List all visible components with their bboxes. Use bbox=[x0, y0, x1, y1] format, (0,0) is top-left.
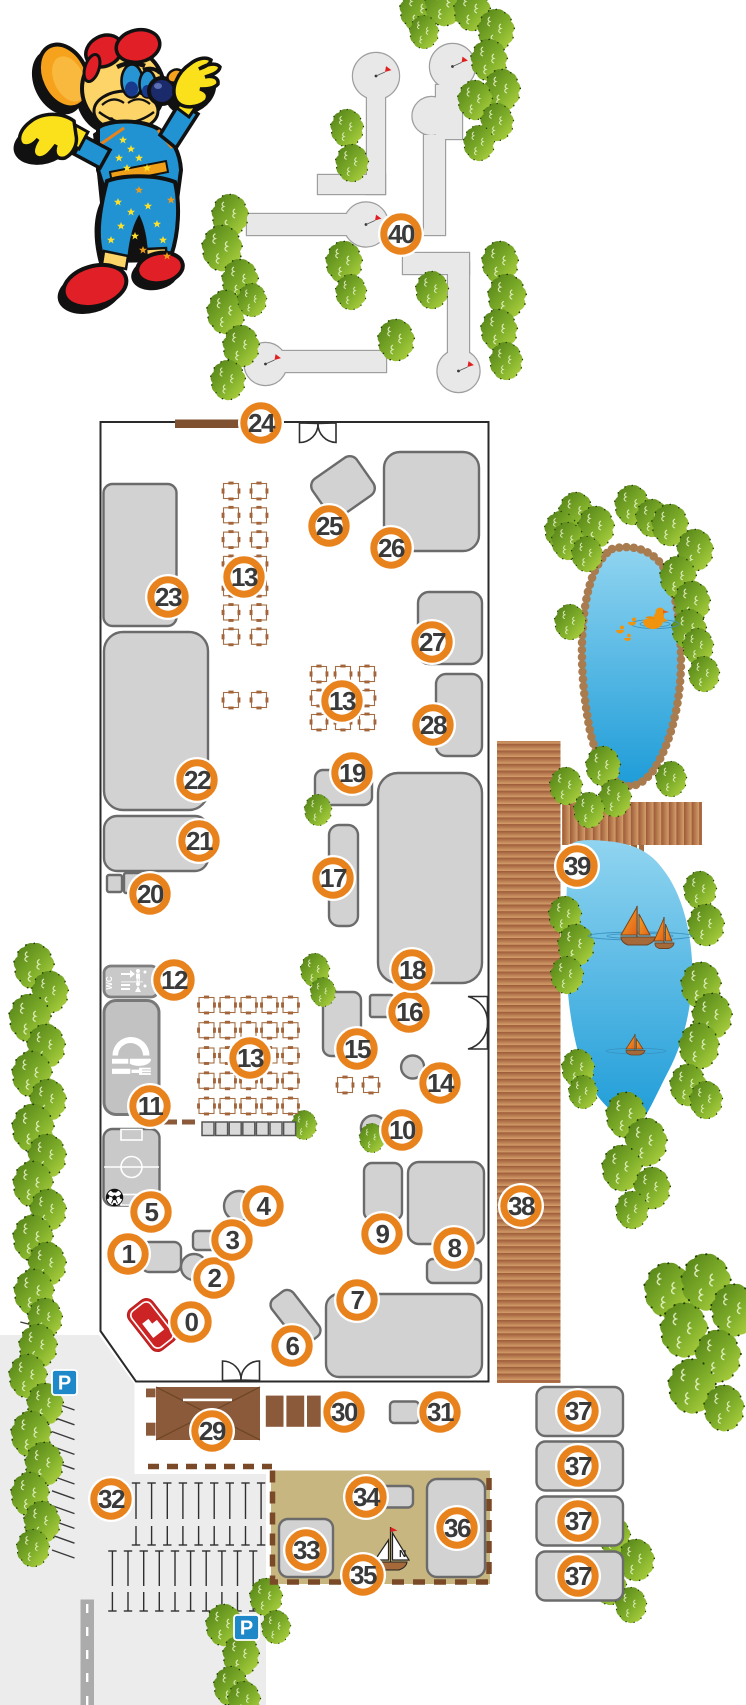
svg-text:15: 15 bbox=[344, 1034, 371, 1064]
svg-text:26: 26 bbox=[378, 533, 405, 563]
svg-text:5: 5 bbox=[145, 1197, 159, 1227]
svg-text:38: 38 bbox=[508, 1191, 535, 1221]
svg-text:22: 22 bbox=[184, 765, 211, 795]
svg-text:3: 3 bbox=[226, 1225, 240, 1255]
svg-text:32: 32 bbox=[98, 1484, 125, 1514]
svg-text:13: 13 bbox=[231, 562, 258, 592]
svg-text:40: 40 bbox=[388, 219, 415, 249]
svg-text:33: 33 bbox=[293, 1535, 320, 1565]
svg-text:14: 14 bbox=[427, 1068, 455, 1098]
svg-text:37: 37 bbox=[565, 1396, 592, 1426]
svg-text:8: 8 bbox=[448, 1233, 462, 1263]
svg-text:29: 29 bbox=[199, 1416, 226, 1446]
svg-text:11: 11 bbox=[138, 1091, 164, 1121]
svg-text:37: 37 bbox=[565, 1561, 592, 1591]
svg-text:18: 18 bbox=[399, 955, 426, 985]
svg-text:13: 13 bbox=[237, 1043, 264, 1073]
svg-text:WC: WC bbox=[105, 976, 114, 990]
svg-text:13: 13 bbox=[329, 686, 356, 716]
svg-text:10: 10 bbox=[389, 1115, 416, 1145]
svg-text:7: 7 bbox=[351, 1285, 365, 1315]
svg-text:4: 4 bbox=[257, 1191, 272, 1221]
svg-text:19: 19 bbox=[339, 758, 366, 788]
svg-text:39: 39 bbox=[564, 851, 591, 881]
svg-text:P: P bbox=[240, 1618, 253, 1640]
svg-text:28: 28 bbox=[420, 710, 447, 740]
svg-text:27: 27 bbox=[419, 627, 446, 657]
svg-text:17: 17 bbox=[320, 863, 347, 893]
svg-text:37: 37 bbox=[565, 1451, 592, 1481]
svg-text:16: 16 bbox=[396, 997, 423, 1027]
svg-text:P: P bbox=[58, 1373, 71, 1395]
svg-text:21: 21 bbox=[186, 826, 213, 856]
svg-text:9: 9 bbox=[376, 1219, 390, 1249]
svg-text:23: 23 bbox=[155, 582, 182, 612]
svg-text:30: 30 bbox=[331, 1397, 358, 1427]
svg-text:12: 12 bbox=[161, 965, 188, 995]
svg-text:25: 25 bbox=[316, 511, 343, 541]
svg-text:34: 34 bbox=[353, 1482, 381, 1512]
svg-text:2: 2 bbox=[208, 1263, 222, 1293]
svg-text:31: 31 bbox=[427, 1397, 454, 1427]
svg-text:24: 24 bbox=[248, 408, 276, 438]
svg-text:36: 36 bbox=[444, 1513, 471, 1543]
svg-text:0: 0 bbox=[185, 1307, 199, 1337]
svg-text:20: 20 bbox=[137, 879, 164, 909]
svg-text:6: 6 bbox=[286, 1331, 300, 1361]
svg-text:1: 1 bbox=[122, 1239, 136, 1269]
svg-text:37: 37 bbox=[565, 1506, 592, 1536]
svg-text:35: 35 bbox=[350, 1560, 377, 1590]
svg-text:N: N bbox=[399, 1549, 406, 1560]
